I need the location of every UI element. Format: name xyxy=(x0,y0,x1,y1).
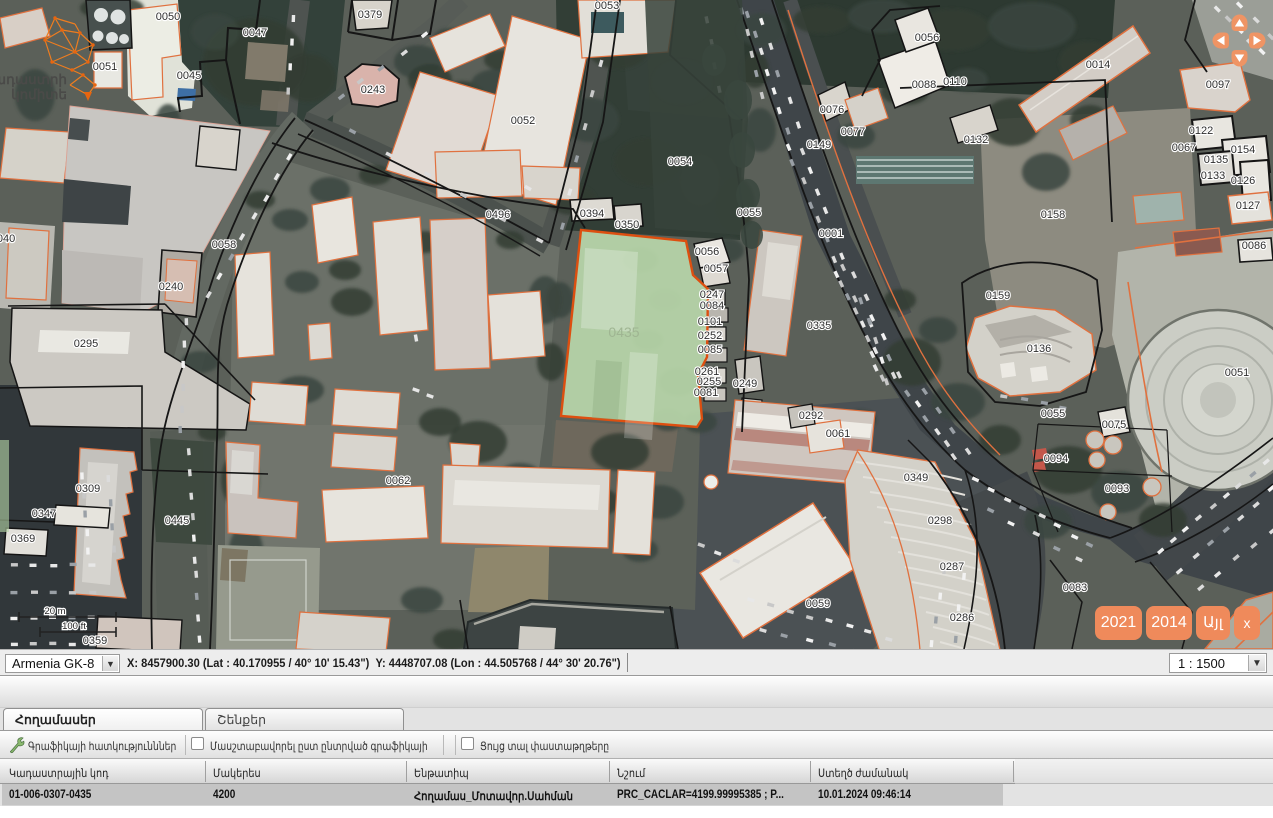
svg-text:0369: 0369 xyxy=(11,533,35,545)
svg-text:0286: 0286 xyxy=(950,612,974,624)
svg-text:0252: 0252 xyxy=(698,330,722,342)
svg-text:0122: 0122 xyxy=(1189,125,1213,137)
svg-text:0379: 0379 xyxy=(358,9,382,21)
svg-text:0350: 0350 xyxy=(615,219,639,231)
svg-text:0045: 0045 xyxy=(177,70,201,82)
svg-text:0335: 0335 xyxy=(807,320,831,332)
svg-text:0097: 0097 xyxy=(1206,79,1230,91)
svg-text:100 ft: 100 ft xyxy=(62,621,86,632)
svg-text:0058: 0058 xyxy=(212,239,236,251)
svg-text:0110: 0110 xyxy=(943,76,967,88)
svg-text:կոմիտե: կոմիտե xyxy=(11,87,67,103)
svg-text:0298: 0298 xyxy=(928,515,952,527)
svg-text:0059: 0059 xyxy=(806,598,830,610)
svg-text:0347: 0347 xyxy=(32,508,56,520)
svg-text:0136: 0136 xyxy=(1027,343,1051,355)
svg-text:0435: 0435 xyxy=(608,324,639,340)
svg-text:0093: 0093 xyxy=(1105,483,1129,495)
svg-text:0159: 0159 xyxy=(986,290,1010,302)
svg-text:0240: 0240 xyxy=(159,281,183,293)
svg-text:0052: 0052 xyxy=(511,115,535,127)
svg-text:0062: 0062 xyxy=(386,475,410,487)
svg-text:0445: 0445 xyxy=(165,515,189,527)
svg-text:0133: 0133 xyxy=(1201,170,1225,182)
svg-text:0135: 0135 xyxy=(1204,154,1228,166)
svg-text:0086: 0086 xyxy=(1242,240,1266,252)
svg-text:20 m: 20 m xyxy=(44,606,65,617)
svg-text:0051: 0051 xyxy=(1225,367,1249,379)
svg-text:0149: 0149 xyxy=(807,139,831,151)
svg-text:0359: 0359 xyxy=(83,635,107,647)
svg-text:0055: 0055 xyxy=(737,207,761,219)
svg-text:0001: 0001 xyxy=(819,228,843,240)
svg-text:0132: 0132 xyxy=(964,134,988,146)
svg-text:0126: 0126 xyxy=(1231,175,1255,187)
svg-text:0349: 0349 xyxy=(904,472,928,484)
svg-text:0067: 0067 xyxy=(1172,142,1196,154)
svg-text:0292: 0292 xyxy=(799,410,823,422)
svg-text:0081: 0081 xyxy=(694,387,718,399)
svg-text:0084: 0084 xyxy=(700,300,724,312)
svg-text:0094: 0094 xyxy=(1044,453,1068,465)
svg-text:0054: 0054 xyxy=(668,156,692,168)
svg-text:0056: 0056 xyxy=(915,32,939,44)
svg-text:040: 040 xyxy=(0,233,15,245)
svg-text:0158: 0158 xyxy=(1041,209,1065,221)
svg-text:0050: 0050 xyxy=(156,11,180,23)
svg-text:0057: 0057 xyxy=(704,263,728,275)
svg-text:0056: 0056 xyxy=(695,246,719,258)
svg-text:0051: 0051 xyxy=(93,61,117,73)
svg-text:0053: 0053 xyxy=(595,0,619,12)
svg-text:0249: 0249 xyxy=(733,378,757,390)
svg-text:0295: 0295 xyxy=(74,338,98,350)
svg-text:0127: 0127 xyxy=(1236,200,1260,212)
svg-text:0061: 0061 xyxy=(826,428,850,440)
svg-text:0287: 0287 xyxy=(940,561,964,573)
svg-text:0077: 0077 xyxy=(841,126,865,138)
svg-text:0088: 0088 xyxy=(912,79,936,91)
svg-text:0154: 0154 xyxy=(1231,144,1255,156)
svg-text:0075: 0075 xyxy=(1102,419,1126,431)
svg-text:Կադաստրի: Կադաստրի xyxy=(0,72,67,88)
svg-text:0047: 0047 xyxy=(243,27,267,39)
svg-text:0085: 0085 xyxy=(698,344,722,356)
svg-text:0014: 0014 xyxy=(1086,59,1110,71)
svg-text:0496: 0496 xyxy=(486,209,510,221)
svg-text:0309: 0309 xyxy=(76,483,100,495)
svg-text:0243: 0243 xyxy=(361,84,385,96)
svg-text:0101: 0101 xyxy=(698,316,722,328)
svg-text:0076: 0076 xyxy=(820,104,844,116)
svg-text:0394: 0394 xyxy=(580,208,604,220)
svg-text:0083: 0083 xyxy=(1063,582,1087,594)
svg-text:0055: 0055 xyxy=(1041,408,1065,420)
